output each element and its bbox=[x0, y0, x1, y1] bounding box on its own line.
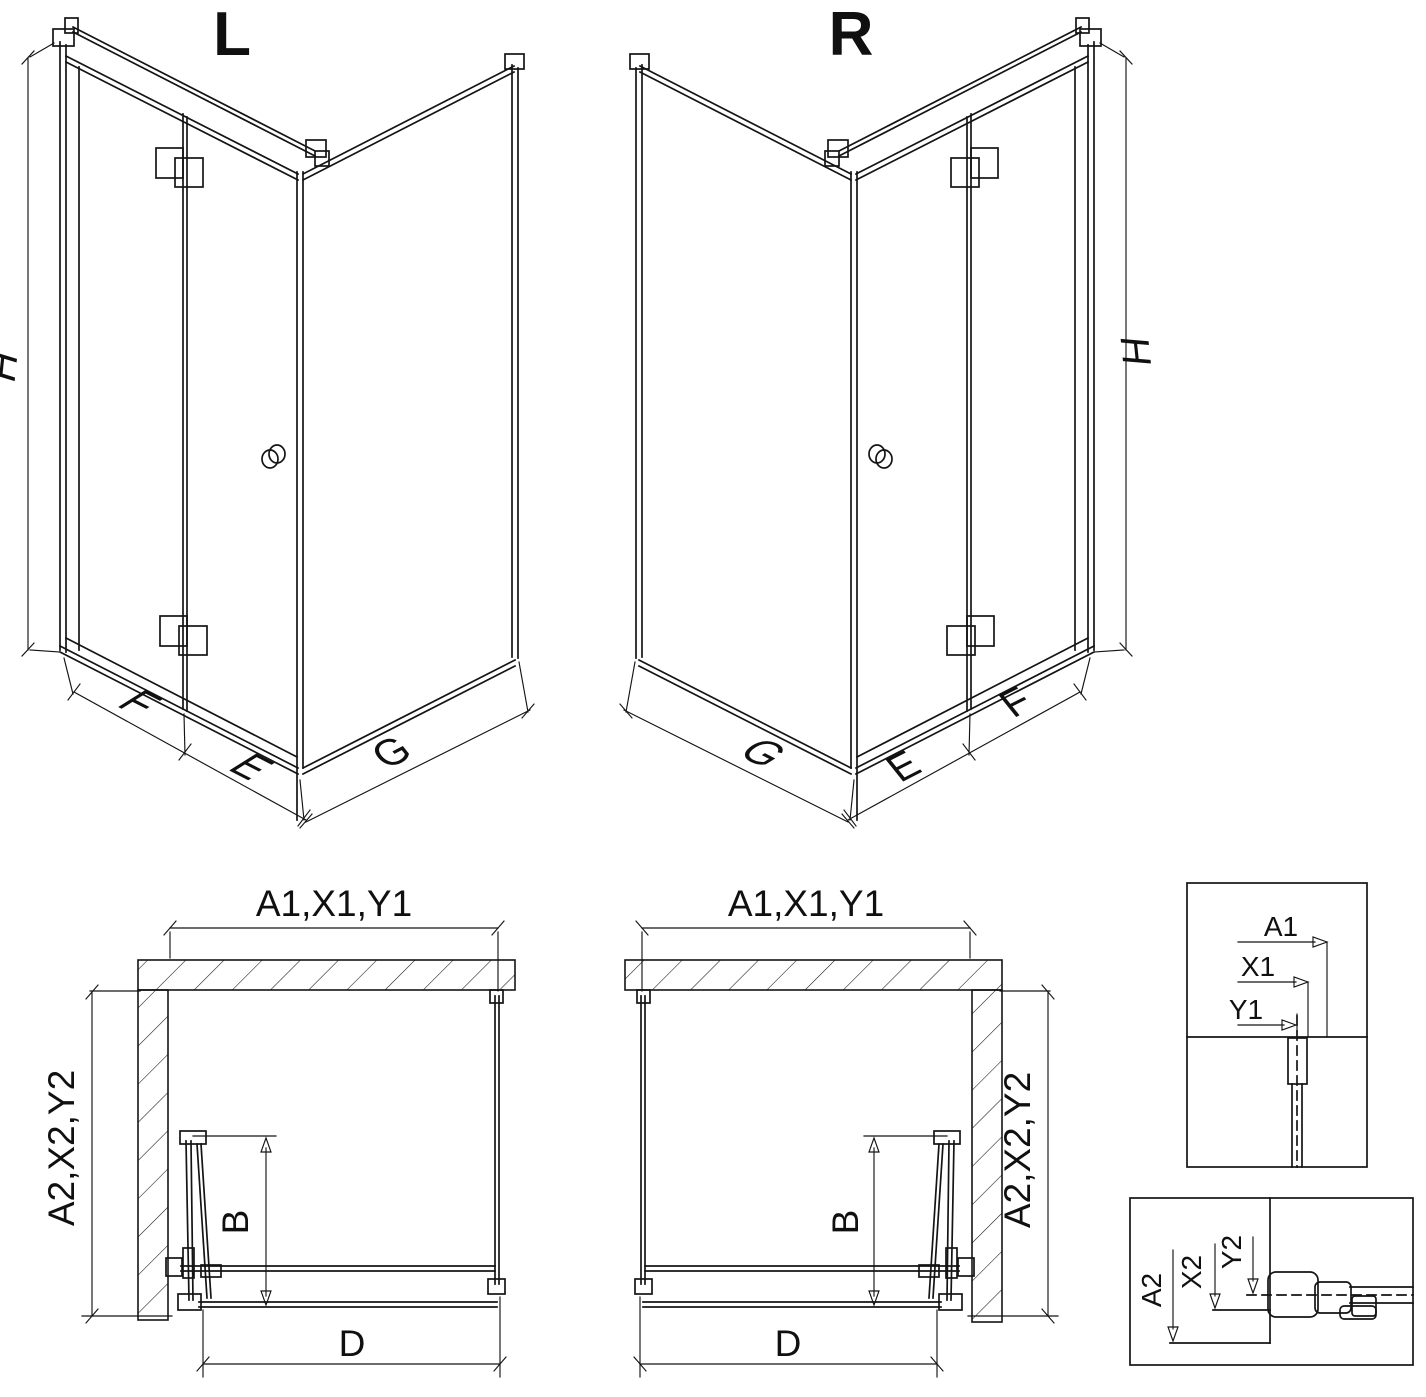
f-label-left: F bbox=[110, 681, 171, 725]
plan-right-side-dim-label: A2,X2,Y2 bbox=[997, 1072, 1038, 1228]
iso-view-left-labels: L H F E G bbox=[0, 0, 423, 789]
plan-left-side-dim-label: A2,X2,Y2 bbox=[41, 1070, 82, 1226]
plan-left-top-dim-label: A1,X1,Y1 bbox=[256, 883, 412, 924]
detail-a1-label: A1 bbox=[1264, 911, 1298, 942]
e-label-right: E bbox=[872, 744, 934, 789]
drawing-canvas: L H F E G R H F E G bbox=[0, 0, 1426, 1397]
plan-left-b-label: B bbox=[215, 1210, 256, 1235]
technical-drawing-sheet: L H F E G R H F E G bbox=[0, 0, 1426, 1397]
e-label-left: E bbox=[221, 744, 283, 789]
door-knob-icon bbox=[262, 445, 285, 468]
height-dimension-line bbox=[22, 43, 60, 656]
detail-a2-label: A2 bbox=[1136, 1273, 1167, 1307]
variant-label-left: L bbox=[213, 0, 251, 69]
plan-left-labels: A1,X1,Y1 A2,X2,Y2 B D bbox=[41, 883, 412, 1364]
height-label-right: H bbox=[1112, 334, 1159, 367]
detail-y2-label: Y2 bbox=[1216, 1235, 1247, 1269]
detail-x1-label: X1 bbox=[1241, 951, 1275, 982]
plan-right-b-label: B bbox=[825, 1210, 866, 1235]
detail-x2-label: X2 bbox=[1176, 1255, 1207, 1289]
iso-view-right-lines bbox=[620, 18, 1132, 828]
detail-y1-label: Y1 bbox=[1229, 994, 1263, 1025]
variant-label-right: R bbox=[829, 0, 874, 69]
height-label-left: H bbox=[0, 350, 26, 383]
plan-right-d-label: D bbox=[775, 1323, 802, 1364]
plan-left-d-label: D bbox=[339, 1323, 366, 1364]
detail-wall-profile: A1 X1 Y1 bbox=[1187, 883, 1367, 1167]
door-hinge-top-icon bbox=[156, 148, 203, 187]
detail-floor-profile: A2 X2 Y2 bbox=[1130, 1198, 1413, 1365]
side-dimension-line bbox=[300, 662, 534, 828]
iso-view-left-lines bbox=[22, 18, 534, 828]
plan-right-top-dim-label: A1,X1,Y1 bbox=[728, 883, 884, 924]
